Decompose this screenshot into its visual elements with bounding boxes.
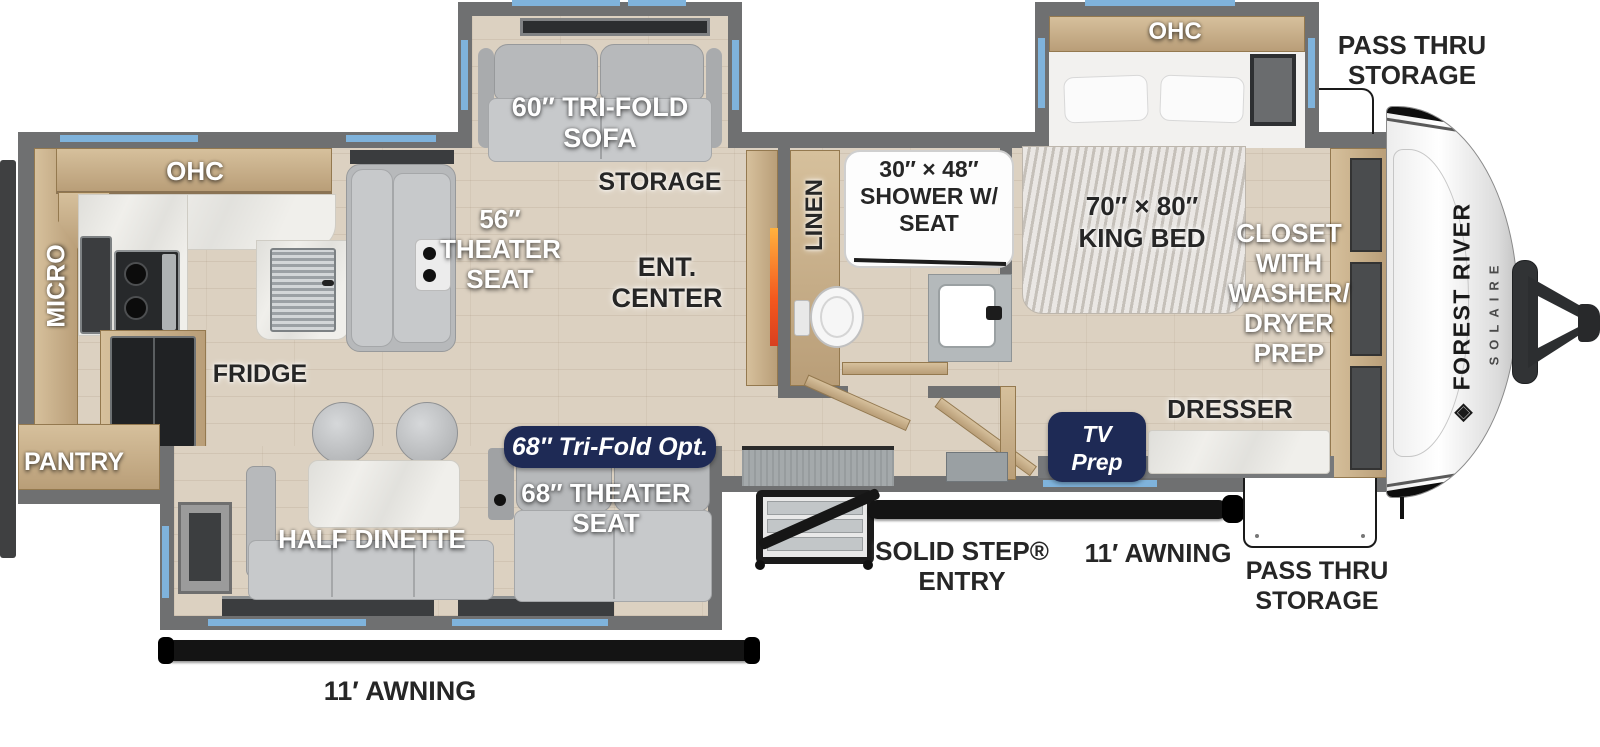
hitch-coupler bbox=[1578, 304, 1600, 342]
bed-ohc-label: OHC bbox=[1120, 18, 1230, 46]
bath-faucet bbox=[986, 306, 1002, 320]
closet-label-line5: PREP bbox=[1205, 338, 1373, 368]
theater68-label-line2: SEAT bbox=[506, 508, 706, 538]
theater68-cupholder bbox=[494, 494, 506, 506]
bed-slide-window-left bbox=[1038, 38, 1045, 108]
bath-wall-left bbox=[778, 148, 790, 398]
tongue-jack-foot bbox=[1400, 497, 1404, 519]
solid-step-label-line2: ENTRY bbox=[862, 566, 1062, 596]
bottom-wall-left bbox=[18, 488, 170, 504]
shower-label-line2: SHOWER W/ bbox=[848, 183, 1010, 210]
stair-threshold bbox=[842, 362, 948, 375]
pass-thru-bottom-line2: STORAGE bbox=[1222, 586, 1412, 616]
theater56-shelf bbox=[350, 150, 454, 164]
hatch-screw-1 bbox=[1255, 534, 1259, 538]
brand-model: SOLAIRE bbox=[1487, 259, 1502, 366]
awning-rod-rear bbox=[164, 640, 754, 661]
pantry-label: PANTRY bbox=[16, 448, 132, 477]
sofa-slide-roof-window-1 bbox=[512, 0, 620, 6]
microwave bbox=[80, 236, 112, 334]
theater56-label-line2: THEATER bbox=[440, 234, 560, 264]
hatch-screw-2 bbox=[1361, 534, 1365, 538]
trifold-opt-badge: 68″ Tri-Fold Opt. bbox=[504, 426, 716, 468]
dinette-stool-1 bbox=[312, 402, 374, 464]
pillow-left bbox=[1063, 75, 1149, 124]
dinette-table bbox=[308, 460, 460, 528]
ent-center-label: ENT. CENTER bbox=[592, 252, 742, 314]
brand-diamond-icon: ◈ bbox=[1449, 402, 1476, 421]
closet-label-line4: DRYER bbox=[1205, 308, 1373, 338]
bed-slide-window-right bbox=[1308, 38, 1315, 108]
fireplace-strip bbox=[770, 228, 778, 346]
sofa-slide-window-right bbox=[732, 40, 739, 110]
sofa-slide-roof-window-2 bbox=[628, 0, 686, 6]
shower-label: 30″ × 48″ SHOWER W/ SEAT bbox=[848, 156, 1010, 237]
shower-label-line1: 30″ × 48″ bbox=[848, 156, 1010, 183]
bed-slide-corner-window bbox=[1250, 54, 1296, 126]
stove-cooktop bbox=[114, 250, 180, 334]
dinette-slide-side-window bbox=[178, 502, 232, 594]
theater68-label-line1: 68″ THEATER bbox=[506, 478, 706, 508]
brand-manufacturer: FOREST RIVER bbox=[1449, 202, 1476, 390]
burner-1 bbox=[124, 262, 148, 286]
dinette-slide-window-left bbox=[162, 526, 169, 598]
pillow-right bbox=[1159, 75, 1245, 124]
solid-step-label-line1: SOLID STEP® bbox=[862, 536, 1062, 566]
shower-label-line3: SEAT bbox=[848, 210, 1010, 237]
ent-center-label-line2: CENTER bbox=[592, 283, 742, 314]
pass-thru-top-label: PASS THRU STORAGE bbox=[1322, 30, 1502, 90]
kitchen-ohc-label: OHC bbox=[140, 156, 250, 186]
stove-knob-strip bbox=[162, 254, 176, 330]
linen-label: LINEN bbox=[801, 179, 829, 251]
awning-rod-rear-cap-right bbox=[744, 637, 760, 664]
window-top-2 bbox=[346, 135, 436, 142]
storage-label: STORAGE bbox=[580, 168, 740, 197]
awning-rod-rear-cap-left bbox=[158, 637, 174, 664]
pass-thru-top-line2: STORAGE bbox=[1322, 60, 1502, 90]
sofa-label-line2: SOFA bbox=[492, 123, 708, 154]
pass-thru-bottom-label: PASS THRU STORAGE bbox=[1222, 556, 1412, 616]
brand-mark: ◈ FOREST RIVER bbox=[1449, 202, 1476, 421]
theater56-label-line3: SEAT bbox=[440, 264, 560, 294]
dinette-slide-side-window-glass bbox=[189, 513, 221, 581]
pass-thru-bottom-line1: PASS THRU bbox=[1222, 556, 1412, 586]
dresser-top bbox=[1148, 430, 1330, 474]
awning-entry-label: 11′ AWNING bbox=[1068, 538, 1248, 568]
dinette-window-strip-2 bbox=[452, 619, 608, 626]
sofa-slide-window-left bbox=[461, 40, 468, 110]
closet-label: CLOSET WITH WASHER/ DRYER PREP bbox=[1205, 218, 1373, 368]
stair-landing-step bbox=[946, 452, 1008, 482]
floorplan-canvas: OHC MICRO FRIDGE PANTRY 56″ THEATER SEAT bbox=[0, 0, 1600, 747]
dinette-window-strip-1 bbox=[208, 619, 366, 626]
pass-thru-top-line1: PASS THRU bbox=[1322, 30, 1502, 60]
awning-rod-entry-cap bbox=[1222, 495, 1244, 523]
closet-label-line2: WITH bbox=[1205, 248, 1373, 278]
closet-label-line1: CLOSET bbox=[1205, 218, 1373, 248]
fridge-label: FRIDGE bbox=[200, 360, 320, 389]
closet-panel-3 bbox=[1350, 366, 1382, 470]
tv-prep-line2: Prep bbox=[1048, 448, 1146, 476]
sofa-slide-rear-window bbox=[520, 18, 710, 36]
tv-prep-badge: TV Prep bbox=[1048, 412, 1146, 482]
cupholder-2 bbox=[423, 269, 436, 282]
awning-rear-label: 11′ AWNING bbox=[250, 676, 550, 707]
dinette-stool-2 bbox=[396, 402, 458, 464]
micro-label: MICRO bbox=[43, 244, 72, 327]
step-foot-left bbox=[755, 560, 765, 570]
toilet-tank bbox=[794, 300, 810, 336]
cupholder-1 bbox=[423, 247, 436, 260]
theater56-label-line1: 56″ bbox=[440, 204, 560, 234]
entry-mat bbox=[742, 446, 894, 486]
toilet-bowl bbox=[810, 286, 864, 348]
tv-prep-line1: TV bbox=[1048, 420, 1146, 448]
toilet-seat-ring bbox=[820, 296, 854, 338]
theater68-label: 68″ THEATER SEAT bbox=[506, 478, 706, 538]
theater56-label: 56″ THEATER SEAT bbox=[440, 204, 560, 294]
bed-slide-roof-window bbox=[1085, 0, 1235, 6]
window-top-1 bbox=[60, 135, 198, 142]
rear-bumper bbox=[0, 160, 16, 558]
burner-2 bbox=[124, 296, 148, 320]
sink-faucet bbox=[322, 280, 334, 286]
sofa-label-line1: 60″ TRI-FOLD bbox=[492, 92, 708, 123]
sofa-label: 60″ TRI-FOLD SOFA bbox=[492, 92, 708, 154]
dresser-label: DRESSER bbox=[1140, 394, 1320, 424]
ent-center-label-line1: ENT. bbox=[592, 252, 742, 283]
kitchen-sink bbox=[270, 248, 336, 332]
solid-step-label: SOLID STEP® ENTRY bbox=[862, 536, 1062, 596]
closet-label-line3: WASHER/ bbox=[1205, 278, 1373, 308]
awning-rod-entry bbox=[868, 500, 1228, 519]
theater56-back-cushion bbox=[351, 169, 393, 347]
half-dinette-label: HALF DINETTE bbox=[252, 524, 492, 554]
